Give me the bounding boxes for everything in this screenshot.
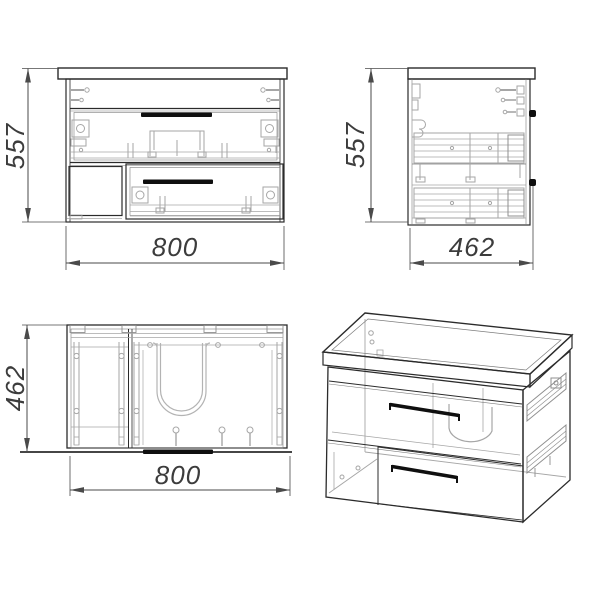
- top-drawer-slides: [71, 342, 283, 445]
- iso-view: [323, 313, 572, 522]
- top-view: 462 800: [0, 325, 292, 496]
- side-height-dimension: 557: [340, 69, 408, 223]
- front-height-label: 557: [0, 122, 30, 169]
- side-drawer-slide-upper: [414, 133, 524, 182]
- side-cabinet-body: [408, 79, 530, 225]
- side-height-label: 557: [340, 121, 370, 168]
- side-depth-dimension: 462: [410, 186, 533, 270]
- top-width-dimension: 800: [70, 456, 290, 496]
- drawing-svg: 557 800: [0, 0, 600, 600]
- iso-hidden-details: [329, 319, 566, 493]
- iso-counter-top: [323, 313, 572, 387]
- technical-drawing-sheet: 557 800: [0, 0, 600, 600]
- front-lower-drawer-hardware: [130, 187, 280, 216]
- top-mounting-pins: [173, 427, 253, 446]
- side-back-hardware: [412, 84, 524, 137]
- front-lower-drawer: [126, 164, 283, 219]
- top-view-handle: [143, 450, 213, 455]
- front-counter-top: [58, 68, 287, 79]
- front-top-rail-screws: [70, 88, 280, 102]
- side-drawer-slide-lower: [414, 188, 524, 223]
- front-upper-drawer: [70, 113, 280, 166]
- side-depth-label: 462: [449, 232, 495, 262]
- top-depth-dimension: 462: [0, 325, 67, 452]
- front-width-label: 800: [152, 232, 198, 262]
- front-width-dimension: 800: [66, 226, 284, 270]
- top-width-label: 800: [155, 460, 201, 490]
- top-sink-cutout: [153, 343, 210, 415]
- front-upper-drawer-hardware: [70, 120, 280, 158]
- side-counter-top: [408, 68, 535, 79]
- front-view: 557 800: [0, 68, 287, 270]
- lower-drawer-handle: [143, 180, 213, 185]
- front-open-compartment: [66, 167, 122, 220]
- upper-knob: [529, 110, 536, 117]
- iso-lower-handle: [392, 467, 457, 478]
- lower-knob: [529, 179, 536, 186]
- iso-cabinet-body: [326, 351, 570, 522]
- front-height-dimension: 557: [0, 69, 66, 223]
- iso-right-face-slides: [527, 373, 566, 477]
- top-depth-label: 462: [0, 365, 30, 411]
- side-view: 557 462: [340, 68, 536, 270]
- upper-drawer-handle: [141, 113, 212, 118]
